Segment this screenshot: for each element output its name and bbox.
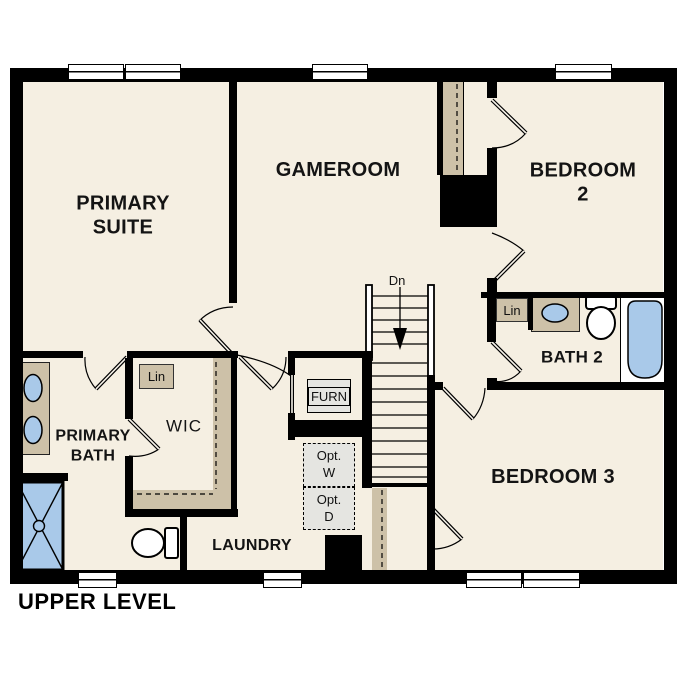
wall (487, 82, 497, 98)
primary-bath-vanity (20, 362, 50, 455)
room-label-gameroom: GAMEROOM (276, 158, 401, 182)
tub-alcove (620, 298, 665, 382)
optional-washer: Opt. W (303, 443, 355, 487)
window (555, 64, 612, 80)
wall (288, 351, 373, 358)
wall (10, 473, 68, 481)
room-label-wic: WIC (166, 417, 202, 438)
optional-dryer: Opt. D (303, 487, 355, 530)
wall (433, 382, 443, 390)
optional-washer-label: Opt. W (317, 448, 342, 482)
room-label-bedroom3: BEDROOM 3 (491, 465, 615, 489)
floor-plan: Lin Lin FURN Opt. W Opt. D PRIMARY SUITE… (0, 0, 687, 687)
wall (487, 148, 497, 175)
wall (231, 358, 237, 517)
window (125, 64, 181, 80)
chase-understair (372, 488, 387, 570)
wall (125, 358, 133, 419)
window (312, 64, 368, 80)
wall (288, 358, 295, 375)
room-label-bath2: BATH 2 (541, 348, 603, 369)
furnace-label: FURN (308, 387, 350, 406)
window (68, 64, 124, 80)
bath2-vanity (531, 297, 580, 332)
wall (127, 351, 238, 358)
wall (487, 298, 496, 342)
window (263, 572, 302, 588)
room-label-primary-suite: PRIMARY SUITE (76, 192, 170, 241)
wall (229, 82, 237, 303)
linen-closet-bath2: Lin (496, 298, 528, 322)
wic-shelf-bottom (133, 490, 231, 510)
linen-label: Lin (503, 303, 520, 318)
wall (362, 358, 372, 488)
linen-label: Lin (148, 369, 165, 384)
room-label-laundry: LAUNDRY (212, 536, 292, 556)
wall (180, 517, 187, 570)
wall (23, 351, 83, 358)
wall (10, 68, 23, 584)
wall (437, 82, 443, 175)
wall (490, 382, 677, 390)
wall-chase-block (440, 175, 497, 227)
window (466, 572, 522, 588)
wall (427, 375, 435, 573)
wall (372, 483, 427, 487)
chase-top (443, 82, 464, 175)
furnace-closet: FURN (307, 379, 351, 413)
wall (125, 509, 238, 517)
page-title: UPPER LEVEL (18, 589, 176, 615)
room-label-bedroom2: BEDROOM 2 (530, 159, 637, 208)
window (523, 572, 580, 588)
wic-shelf-right (213, 358, 231, 510)
wall (664, 68, 677, 584)
wall (325, 535, 362, 570)
linen-closet-wic: Lin (139, 364, 174, 389)
optional-dryer-label: Opt. D (317, 492, 342, 526)
room-label-primary-bath: PRIMARY BATH (55, 426, 130, 465)
window (78, 572, 117, 588)
wall (528, 297, 533, 330)
wall (293, 420, 363, 437)
stairs-down-label: Dn (389, 273, 406, 289)
